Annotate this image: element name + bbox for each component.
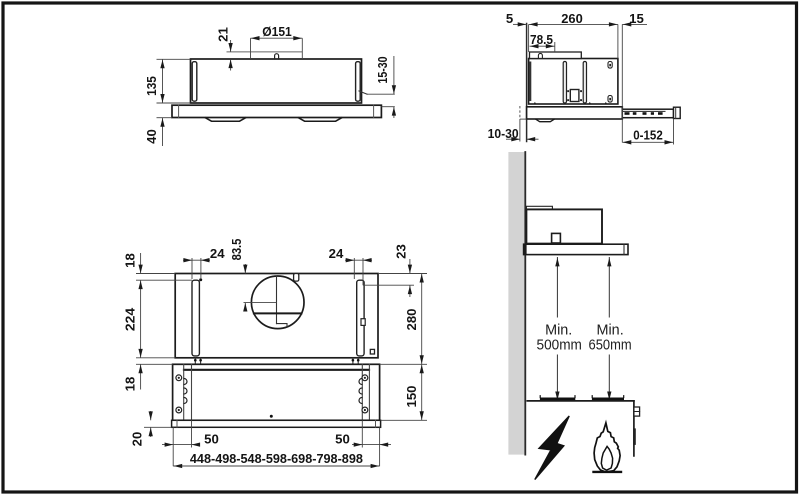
svg-text:448-498-548-598-698-798-898: 448-498-548-598-698-798-898: [190, 451, 363, 466]
svg-text:650mm: 650mm: [589, 338, 632, 354]
svg-text:10-30: 10-30: [488, 126, 519, 141]
svg-text:21: 21: [215, 27, 230, 42]
svg-text:50: 50: [204, 431, 219, 446]
svg-text:18: 18: [122, 377, 137, 392]
svg-text:24: 24: [210, 246, 225, 261]
svg-text:280: 280: [404, 309, 419, 331]
svg-text:150: 150: [404, 386, 419, 408]
svg-text:18: 18: [122, 253, 137, 268]
svg-text:15: 15: [629, 11, 644, 26]
svg-text:5: 5: [506, 11, 513, 26]
svg-text:50: 50: [335, 431, 350, 446]
svg-text:Min.: Min.: [597, 323, 624, 339]
svg-text:23: 23: [393, 244, 408, 259]
svg-text:Ø151: Ø151: [262, 24, 292, 39]
svg-text:0-152: 0-152: [633, 127, 663, 142]
svg-text:Min.: Min.: [545, 323, 572, 339]
svg-text:20: 20: [129, 432, 144, 447]
svg-text:40: 40: [144, 129, 159, 144]
svg-text:24: 24: [329, 246, 344, 261]
svg-text:78.5: 78.5: [530, 32, 553, 47]
svg-text:500mm: 500mm: [537, 338, 582, 354]
svg-text:224: 224: [122, 307, 137, 331]
svg-text:260: 260: [561, 11, 583, 26]
svg-text:135: 135: [144, 76, 159, 96]
svg-text:83.5: 83.5: [229, 239, 244, 261]
svg-text:15-30: 15-30: [375, 57, 390, 84]
